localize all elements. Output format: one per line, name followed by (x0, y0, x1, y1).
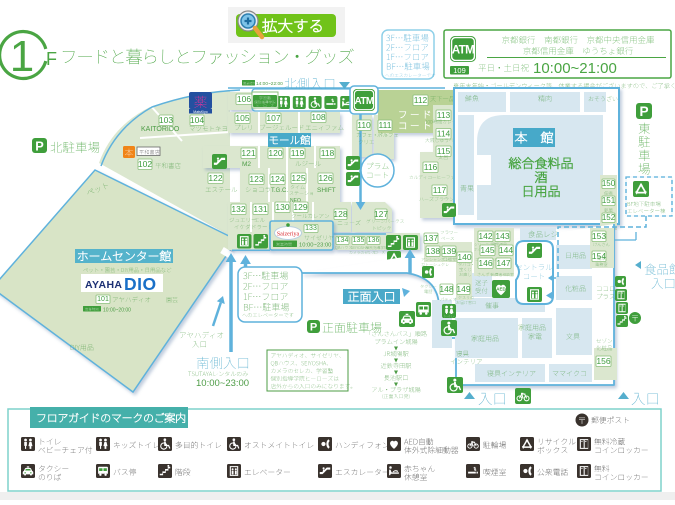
svg-text:125: 125 (291, 173, 305, 183)
svg-text:144: 144 (499, 245, 513, 255)
svg-text:123: 123 (249, 174, 263, 184)
svg-text:116: 116 (424, 162, 438, 172)
svg-text:156: 156 (596, 356, 610, 366)
svg-text:131: 131 (253, 204, 267, 214)
svg-text:103: 103 (159, 115, 173, 125)
svg-text:108: 108 (311, 112, 325, 122)
svg-text:139: 139 (442, 246, 456, 256)
svg-text:137: 137 (424, 233, 438, 243)
svg-text:142: 142 (478, 231, 492, 241)
svg-text:143: 143 (495, 231, 509, 241)
svg-text:101: 101 (97, 296, 109, 303)
svg-text:112: 112 (414, 95, 428, 105)
svg-text:102: 102 (138, 159, 152, 169)
svg-text:104: 104 (190, 115, 204, 125)
svg-text:10:00~23:00: 10:00~23:00 (196, 378, 249, 389)
svg-text:145: 145 (480, 245, 494, 255)
svg-text:DIO: DIO (124, 274, 157, 294)
svg-text:129: 129 (293, 202, 307, 212)
svg-text:121: 121 (241, 148, 255, 158)
svg-text:153: 153 (592, 231, 606, 241)
svg-text:130: 130 (275, 202, 289, 212)
svg-text:148: 148 (439, 284, 453, 294)
svg-text:146: 146 (478, 258, 492, 268)
svg-text:127: 127 (374, 209, 388, 219)
svg-text:110: 110 (357, 120, 371, 130)
svg-text:115: 115 (437, 146, 451, 156)
svg-text:128: 128 (333, 209, 347, 219)
svg-text:136: 136 (368, 237, 380, 244)
svg-text:10:00~23:00: 10:00~23:00 (299, 243, 331, 249)
svg-text:105: 105 (235, 113, 249, 123)
svg-text:10:00~21:00: 10:00~21:00 (533, 60, 617, 77)
svg-text:132: 132 (231, 204, 245, 214)
svg-text:150: 150 (602, 179, 616, 188)
svg-text:MatsKiyo: MatsKiyo (193, 110, 207, 114)
svg-text:14:00~22:00: 14:00~22:00 (256, 81, 283, 87)
svg-text:147: 147 (496, 258, 510, 268)
svg-text:149: 149 (456, 284, 470, 294)
svg-text:135: 135 (353, 237, 365, 244)
svg-text:M2: M2 (242, 161, 251, 168)
svg-text:111: 111 (379, 120, 392, 130)
svg-text:126: 126 (318, 173, 332, 183)
svg-text:AED: AED (496, 287, 506, 292)
svg-text:109: 109 (453, 66, 466, 75)
svg-text:107: 107 (266, 113, 280, 123)
svg-text:152: 152 (602, 213, 616, 222)
svg-text:118: 118 (321, 148, 335, 158)
svg-text:138: 138 (426, 246, 440, 256)
svg-text:113: 113 (437, 110, 451, 120)
svg-text:1: 1 (10, 32, 34, 81)
svg-text:122: 122 (208, 173, 222, 183)
svg-text:114: 114 (437, 129, 451, 139)
svg-text:SHIFT: SHIFT (317, 187, 336, 194)
svg-text:106: 106 (237, 94, 251, 104)
svg-text:Saizeriya: Saizeriya (277, 232, 300, 238)
svg-text:KAITORIDO: KAITORIDO (141, 126, 180, 133)
svg-text:133: 133 (305, 225, 317, 232)
svg-text:10:00~20:00: 10:00~20:00 (103, 308, 131, 314)
svg-text:119: 119 (291, 148, 305, 158)
svg-text:140: 140 (457, 252, 471, 262)
svg-text:AYAHA: AYAHA (85, 279, 122, 291)
svg-text:F: F (46, 49, 57, 69)
svg-text:120: 120 (268, 148, 282, 158)
svg-text:151: 151 (602, 196, 616, 205)
svg-text:124: 124 (270, 174, 284, 184)
svg-text:134: 134 (337, 237, 349, 244)
svg-text:T.G.C.: T.G.C. (271, 188, 288, 194)
svg-text:117: 117 (433, 185, 447, 195)
